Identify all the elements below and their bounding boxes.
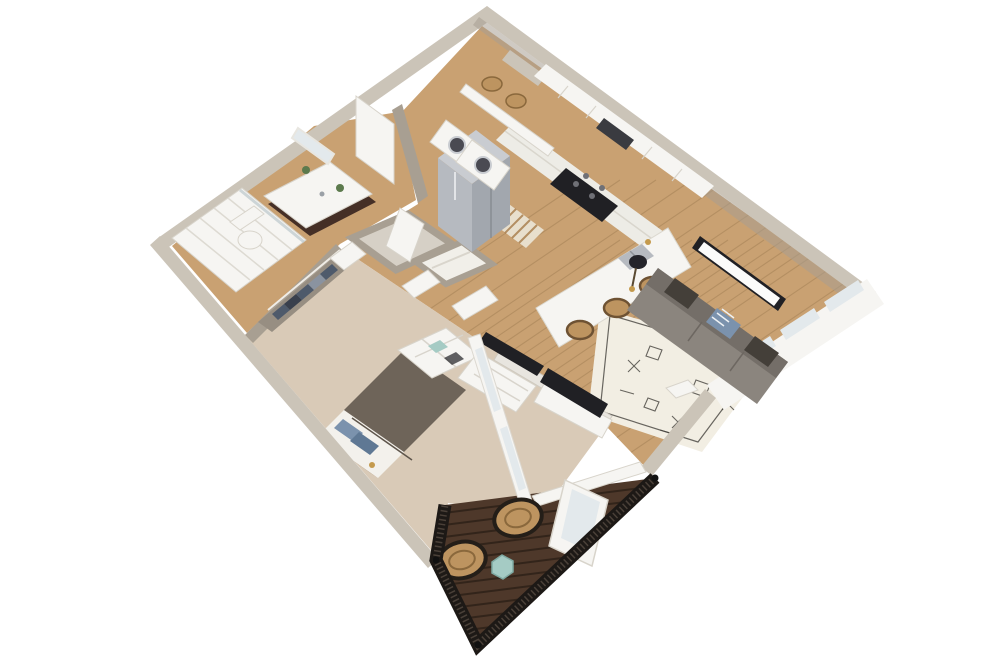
- wall-sconce: [369, 462, 375, 468]
- floorplan-render: [0, 0, 1000, 667]
- railing-post: [475, 642, 482, 649]
- washer-door: [449, 137, 465, 153]
- basket: [482, 77, 502, 91]
- sink-faucet: [320, 192, 325, 197]
- faucet: [645, 239, 651, 245]
- basket: [506, 94, 526, 108]
- railing-post: [652, 475, 659, 482]
- floorplan-page: [0, 0, 1000, 667]
- plant: [336, 184, 344, 192]
- plant: [302, 166, 310, 174]
- dryer-door: [475, 157, 491, 173]
- railing-post: [433, 557, 440, 564]
